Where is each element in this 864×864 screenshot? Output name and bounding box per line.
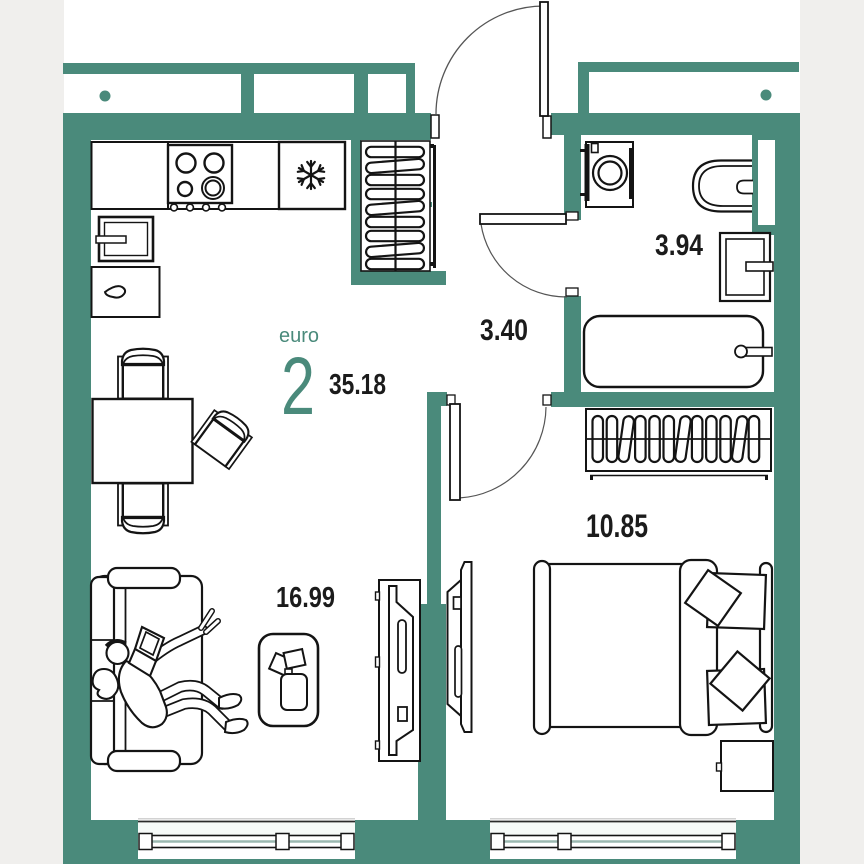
svg-text:35.18: 35.18 xyxy=(329,369,386,401)
svg-text:3.40: 3.40 xyxy=(480,314,528,347)
svg-text:3.94: 3.94 xyxy=(655,229,703,262)
svg-text:16.99: 16.99 xyxy=(276,582,335,614)
svg-text:10.85: 10.85 xyxy=(586,508,648,544)
svg-text:2: 2 xyxy=(281,341,315,432)
